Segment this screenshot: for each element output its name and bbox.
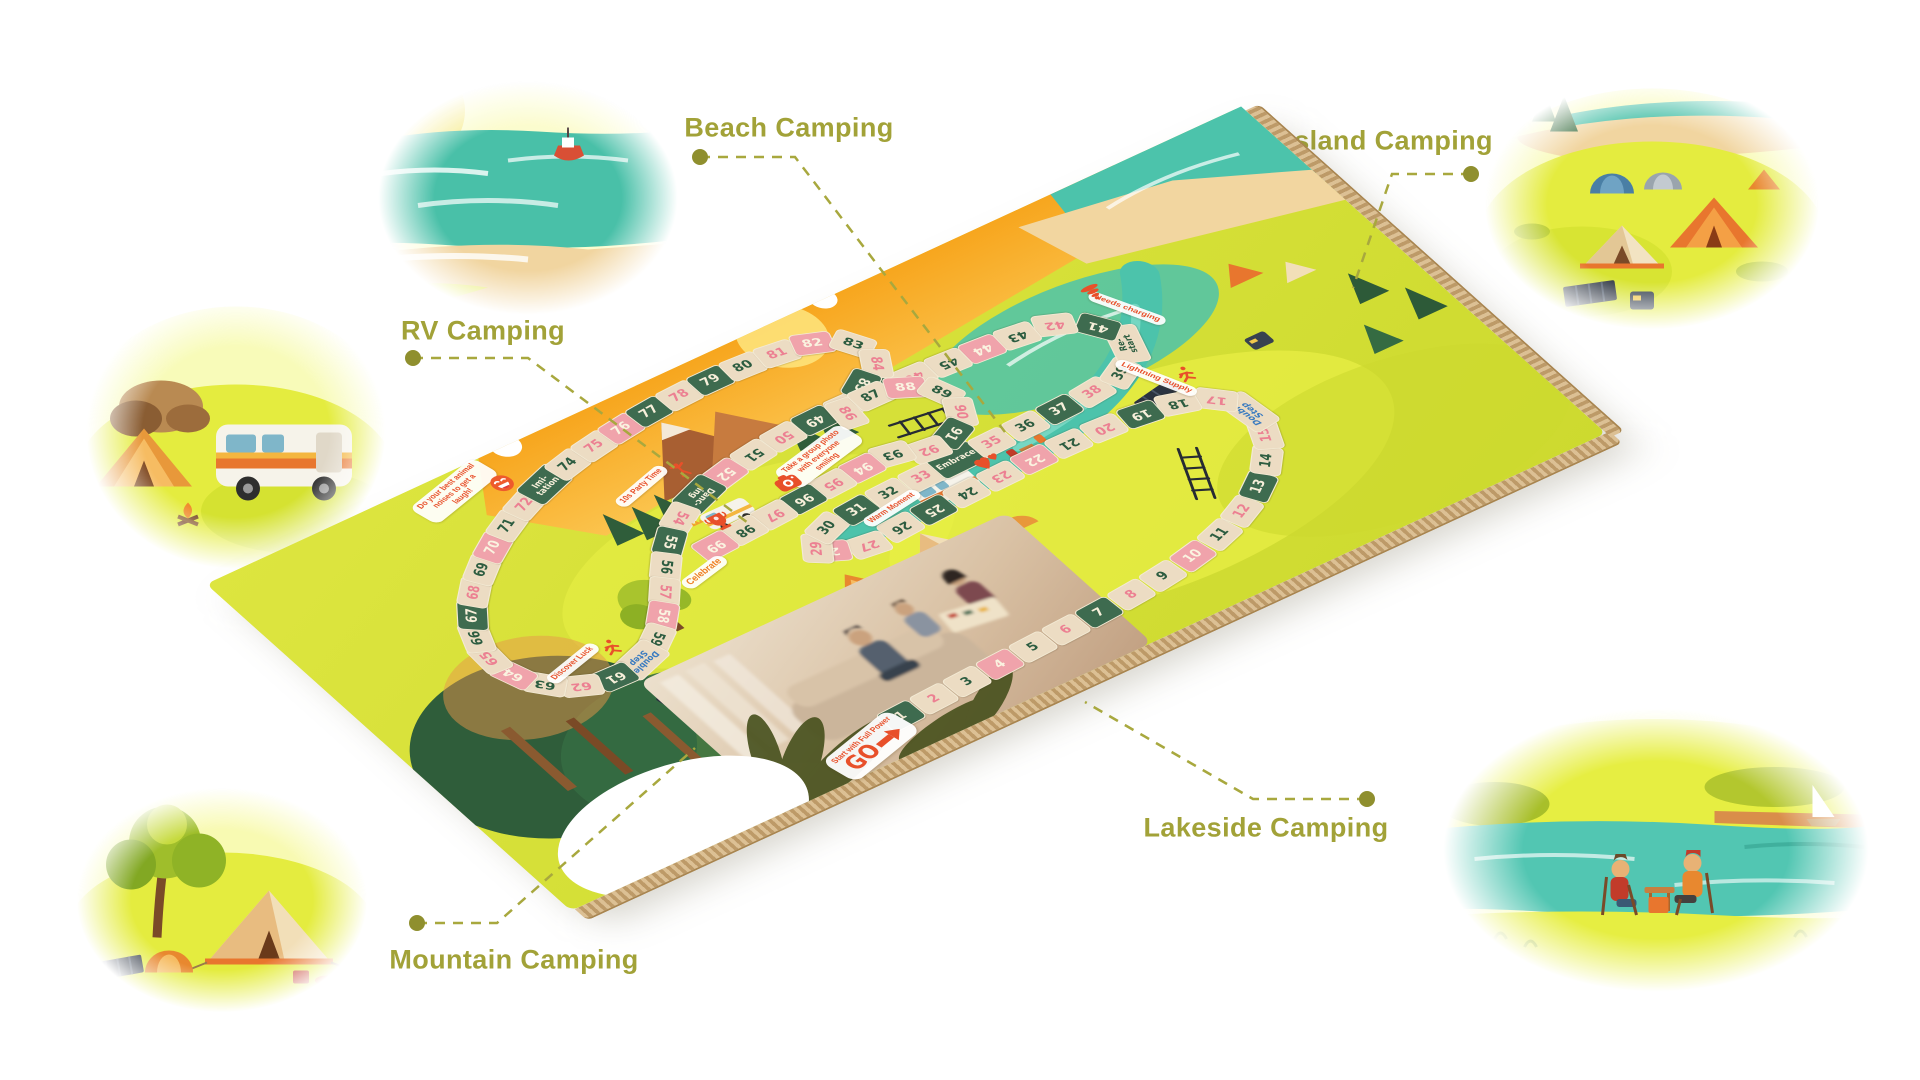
cell-number: 25	[921, 502, 947, 519]
board-cell-41: 41	[1073, 312, 1123, 343]
connector-dot-mountain	[409, 915, 425, 931]
cell-number: 62	[569, 680, 594, 692]
cell-number: 10	[1180, 547, 1205, 564]
cell-number: 38	[1080, 384, 1106, 401]
power-station-icon	[1630, 292, 1654, 310]
cell-number: 19	[1128, 407, 1154, 422]
cell-number: 44	[969, 341, 995, 357]
connector-dot-rv	[405, 350, 421, 366]
cell-number: 2	[925, 693, 943, 705]
cell-number: 94	[849, 460, 875, 476]
callout-beach-camping: Beach Camping	[684, 113, 893, 144]
cell-number: 80	[730, 359, 756, 375]
ladder-icon-11-18	[1171, 437, 1227, 502]
lakeside-scene-illustration	[1415, 689, 1898, 1006]
callout-mountain-camping: Mountain Camping	[389, 945, 638, 976]
cell-number: 87	[858, 388, 884, 404]
cell-number: 36	[1013, 418, 1039, 434]
cell-number: 7	[1090, 606, 1108, 618]
cell-number: 99	[702, 538, 728, 555]
cell-number: 91	[941, 425, 964, 443]
cell-number: 68	[465, 584, 483, 600]
cell-number: 93	[879, 447, 905, 462]
cell-number: 79	[698, 372, 724, 388]
cell-number: 82	[800, 337, 825, 350]
cell-number: 58	[654, 608, 672, 624]
cell-number: 5	[1024, 641, 1042, 653]
beach-vignette	[358, 66, 698, 331]
picnic-table-icon	[1645, 887, 1675, 913]
cell-number: 37	[1047, 401, 1073, 418]
cell-number: 69	[472, 561, 492, 578]
cell-label: Re- start	[1114, 334, 1141, 354]
cell-number: 21	[1056, 436, 1082, 452]
cell-number: 24	[954, 484, 980, 501]
action-tag-53: 10s Party Time	[613, 464, 671, 509]
connector-lakeside	[1085, 702, 1367, 799]
cell-number: 20	[1091, 420, 1117, 436]
cell-number: 97	[761, 507, 787, 524]
cell-number: 74	[555, 456, 580, 473]
grassland-scene-illustration	[1462, 62, 1842, 342]
lakeside-vignette	[1415, 689, 1898, 1011]
grassland-vignette	[1462, 62, 1842, 347]
cell-number: 81	[764, 346, 790, 361]
cell-number: 3	[958, 675, 976, 687]
cooler-icon	[1649, 897, 1669, 913]
action-tag-73: Do your best animal noises to get a laug…	[409, 458, 501, 526]
cell-number: 92	[915, 442, 941, 457]
cell-number: 33	[909, 469, 935, 485]
cell-number: 55	[660, 534, 679, 551]
cell-number: 45	[935, 355, 961, 371]
cell-number: 57	[657, 584, 673, 600]
beach-scene-illustration	[358, 66, 698, 326]
cell-number: 27	[855, 537, 881, 552]
cell-number: 78	[667, 388, 693, 405]
cell-number: 42	[1042, 319, 1067, 331]
cell-number: 6	[1057, 624, 1075, 636]
cell-number: 17	[1206, 393, 1228, 406]
cell-number: 77	[636, 403, 662, 420]
cell-number: 9	[1154, 570, 1172, 582]
cell-number: 18	[1165, 397, 1191, 411]
connector-dot-lakeside	[1359, 791, 1375, 807]
cell-number: 51	[741, 446, 767, 463]
cell-number: 75	[582, 438, 608, 455]
cell-number: 11	[1208, 526, 1232, 543]
cell-number: 66	[467, 630, 487, 646]
cell-number: 67	[465, 608, 481, 623]
cell-number: 61	[602, 669, 628, 685]
cell-number: 95	[820, 475, 846, 492]
mountain-scene-illustration	[57, 773, 387, 1023]
mountain-vignette	[57, 773, 387, 1028]
cell-number: 84	[867, 356, 885, 370]
cell-number: 71	[496, 517, 519, 535]
cell-number: 88	[894, 382, 918, 393]
cell-number: 56	[657, 559, 674, 575]
cell-number: 49	[801, 412, 827, 428]
cell-number: 30	[815, 519, 839, 537]
cell-label: Danc- ing	[683, 482, 716, 507]
cell-number: 14	[1258, 452, 1275, 468]
cell-number: 43	[1004, 328, 1030, 343]
callout-lakeside-camping: Lakeside Camping	[1144, 813, 1389, 844]
cell-number: 41	[1086, 320, 1111, 335]
cell-number: 26	[888, 519, 914, 536]
cell-number: 76	[609, 420, 635, 437]
cell-number: 22	[1021, 451, 1047, 467]
cell-number: 70	[482, 539, 504, 556]
product-showcase: Beach Camping Grassland Camping RV Campi…	[0, 0, 1920, 1080]
cell-number: 52	[713, 465, 738, 482]
cell-number: 13	[1248, 478, 1269, 495]
cell-number: 12	[1230, 502, 1253, 520]
cell-number: 8	[1122, 588, 1140, 600]
cell-number: 4	[991, 658, 1009, 670]
cell-number: 86	[835, 405, 859, 422]
cell-number: 54	[669, 509, 691, 526]
cell-number: 50	[770, 428, 796, 445]
